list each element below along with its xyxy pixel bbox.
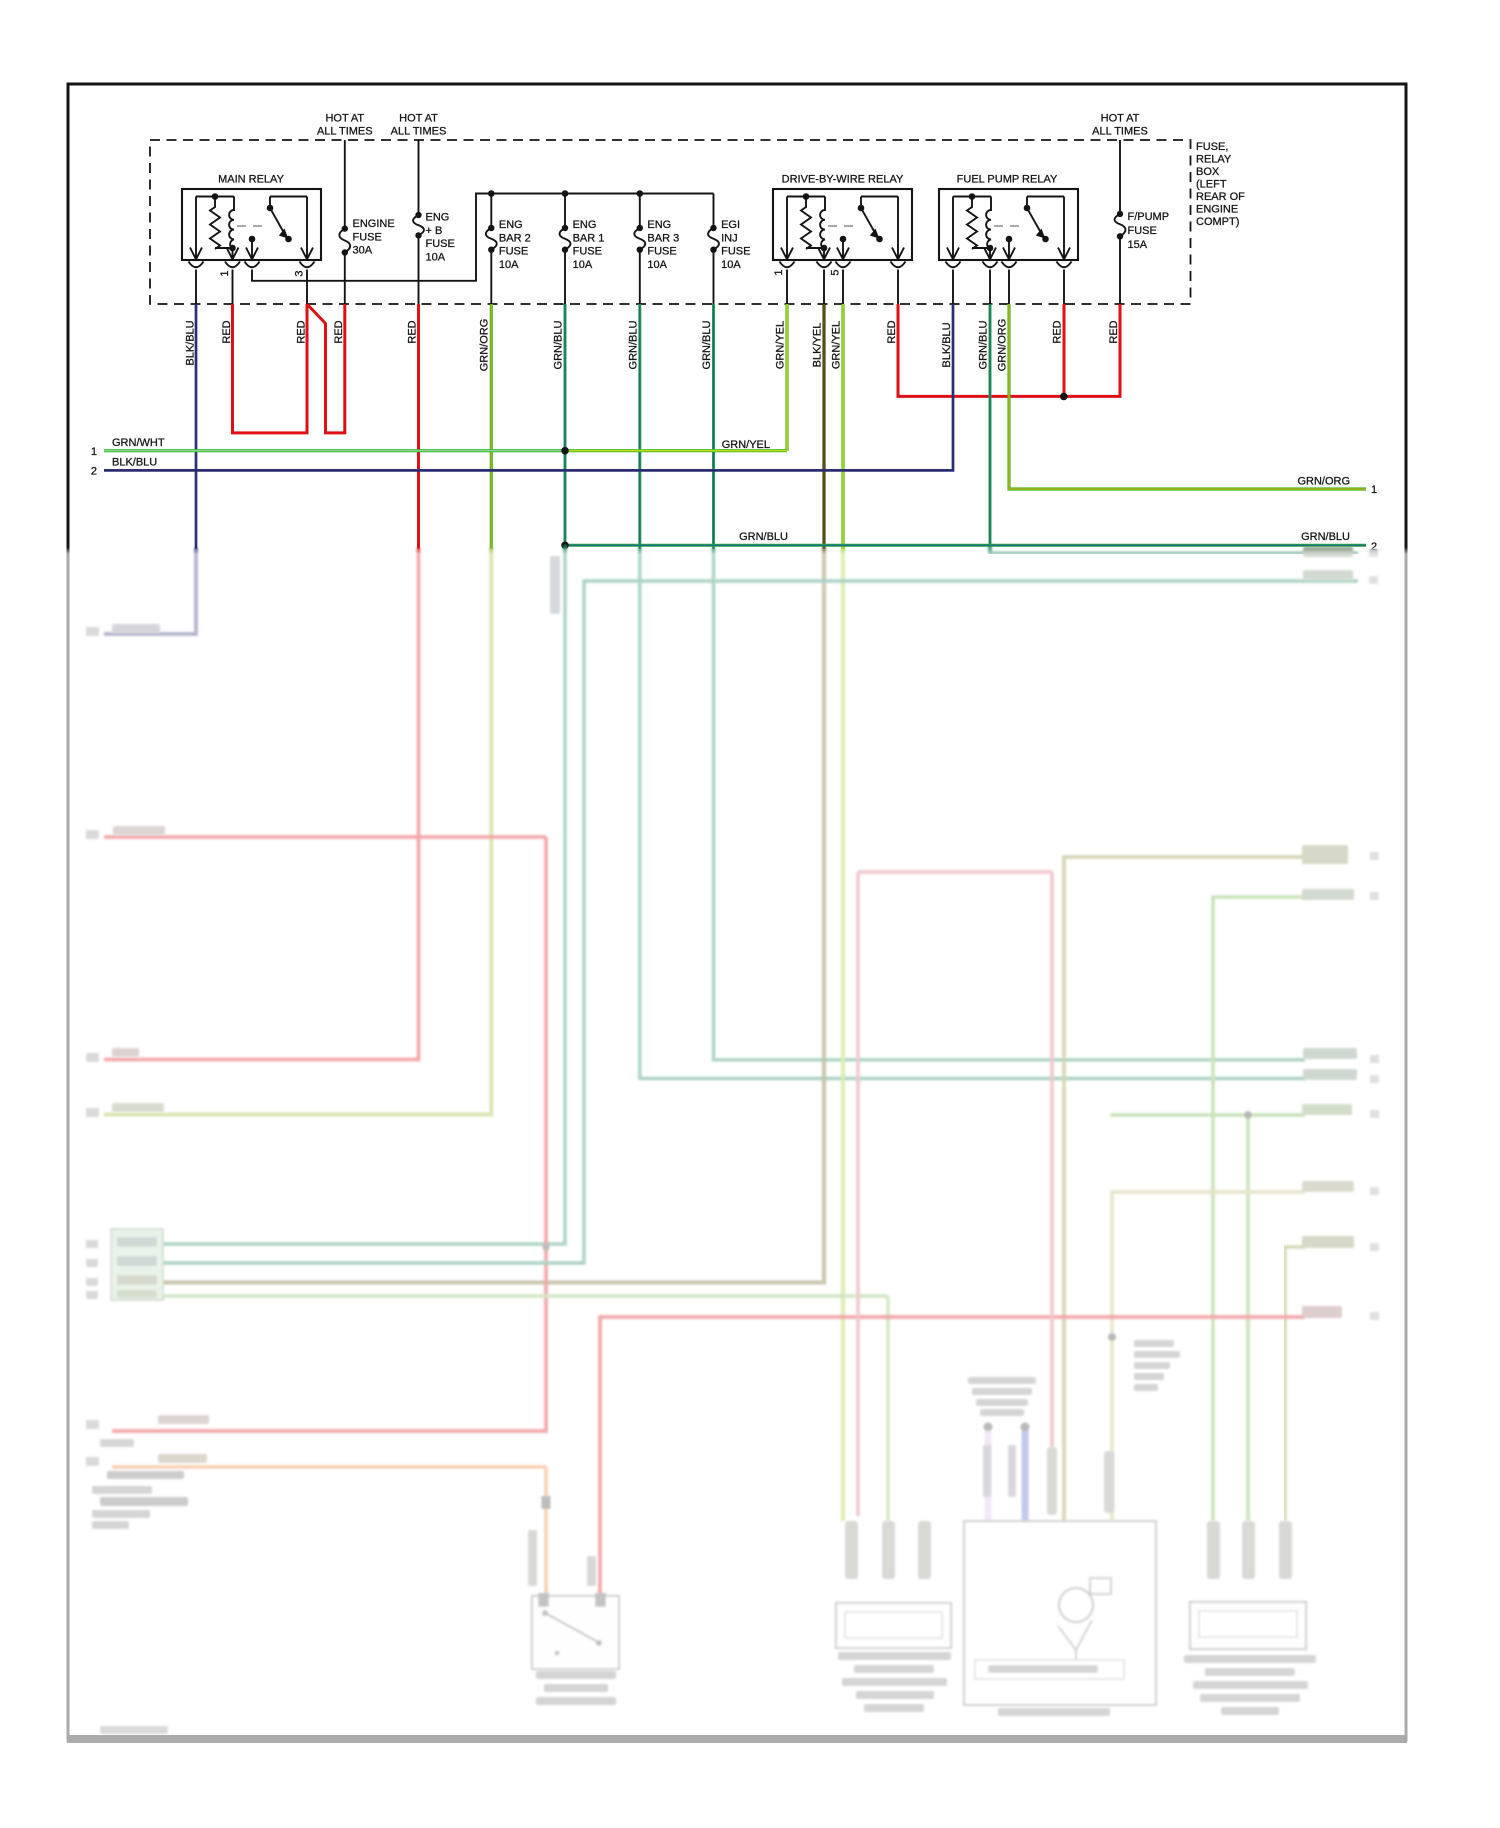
svg-text:GRN/ORG: GRN/ORG: [1297, 476, 1350, 488]
svg-text:GRN/BLU: GRN/BLU: [628, 320, 640, 369]
svg-text:GRN/WHT: GRN/WHT: [112, 437, 165, 449]
svg-text:COMPT): COMPT): [1196, 216, 1239, 228]
svg-text:RED: RED: [1052, 320, 1064, 343]
svg-text:FUSE: FUSE: [1128, 225, 1157, 237]
svg-text:BAR 2: BAR 2: [499, 232, 531, 244]
svg-text:MAIN RELAY: MAIN RELAY: [218, 174, 284, 186]
svg-text:30A: 30A: [353, 245, 373, 257]
svg-text:BOX: BOX: [1196, 166, 1220, 178]
svg-text:1: 1: [91, 446, 97, 458]
svg-text:FUSE: FUSE: [721, 246, 750, 258]
svg-text:RELAY: RELAY: [1196, 154, 1232, 166]
svg-text:1: 1: [219, 270, 231, 276]
svg-text:ALL TIMES: ALL TIMES: [1092, 126, 1148, 138]
svg-text:FUSE: FUSE: [353, 231, 382, 243]
svg-text:RED: RED: [1108, 320, 1120, 343]
svg-text:GRN/YEL: GRN/YEL: [722, 439, 770, 451]
svg-text:BLK/BLU: BLK/BLU: [112, 457, 157, 469]
svg-text:FUEL PUMP RELAY: FUEL PUMP RELAY: [957, 174, 1058, 186]
svg-text:GRN/BLU: GRN/BLU: [553, 320, 565, 369]
svg-text:10A: 10A: [426, 251, 446, 263]
svg-text:F/PUMP: F/PUMP: [1128, 211, 1170, 223]
svg-text:10A: 10A: [573, 259, 593, 271]
svg-text:ALL TIMES: ALL TIMES: [391, 126, 447, 138]
svg-text:FUSE,: FUSE,: [1196, 141, 1228, 153]
svg-text:REAR OF: REAR OF: [1196, 191, 1245, 203]
svg-text:HOT AT: HOT AT: [325, 113, 364, 125]
svg-text:EGI: EGI: [721, 219, 740, 231]
svg-text:HOT AT: HOT AT: [1101, 113, 1140, 125]
svg-text:3: 3: [294, 270, 306, 276]
svg-text:ENGINE: ENGINE: [1196, 204, 1238, 216]
svg-text:GRN/YEL: GRN/YEL: [831, 321, 843, 369]
svg-text:ENGINE: ENGINE: [353, 218, 395, 230]
svg-text:ENG: ENG: [647, 219, 671, 231]
svg-text:BAR 3: BAR 3: [647, 232, 679, 244]
svg-text:ENG: ENG: [573, 219, 597, 231]
svg-text:GRN/ORG: GRN/ORG: [479, 319, 491, 372]
svg-text:RED: RED: [886, 320, 898, 343]
svg-text:RED: RED: [407, 320, 419, 343]
svg-text:FUSE: FUSE: [647, 246, 676, 258]
svg-text:GRN/ORG: GRN/ORG: [997, 319, 1009, 372]
svg-text:+ B: + B: [426, 225, 443, 237]
svg-text:HOT AT: HOT AT: [399, 113, 438, 125]
svg-text:RED: RED: [333, 320, 345, 343]
svg-text:ENG: ENG: [426, 212, 450, 224]
svg-text:5: 5: [830, 269, 842, 275]
svg-text:GRN/BLU: GRN/BLU: [1301, 531, 1350, 543]
svg-text:BLK/BLU: BLK/BLU: [185, 320, 197, 365]
svg-text:ENG: ENG: [499, 219, 523, 231]
svg-text:15A: 15A: [1128, 239, 1148, 251]
svg-text:BLK/YEL: BLK/YEL: [812, 323, 824, 368]
svg-text:INJ: INJ: [721, 232, 738, 244]
svg-text:1: 1: [1371, 484, 1377, 496]
svg-text:FUSE: FUSE: [573, 246, 602, 258]
svg-text:FUSE: FUSE: [499, 246, 528, 258]
svg-text:GRN/YEL: GRN/YEL: [775, 321, 787, 369]
svg-text:10A: 10A: [721, 259, 741, 271]
svg-text:(LEFT: (LEFT: [1196, 179, 1227, 191]
svg-text:GRN/BLU: GRN/BLU: [978, 320, 990, 369]
svg-text:ALL TIMES: ALL TIMES: [317, 126, 373, 138]
svg-text:10A: 10A: [647, 259, 667, 271]
svg-text:10A: 10A: [499, 259, 519, 271]
svg-text:BAR 1: BAR 1: [573, 232, 605, 244]
svg-text:BLK/BLU: BLK/BLU: [941, 322, 953, 367]
svg-text:RED: RED: [296, 320, 308, 343]
svg-text:1: 1: [773, 269, 785, 275]
svg-text:FUSE: FUSE: [426, 238, 455, 250]
svg-text:GRN/BLU: GRN/BLU: [739, 531, 788, 543]
svg-text:RED: RED: [221, 320, 233, 343]
svg-text:DRIVE-BY-WIRE RELAY: DRIVE-BY-WIRE RELAY: [782, 174, 904, 186]
svg-text:2: 2: [91, 466, 97, 478]
svg-text:GRN/BLU: GRN/BLU: [701, 320, 713, 369]
